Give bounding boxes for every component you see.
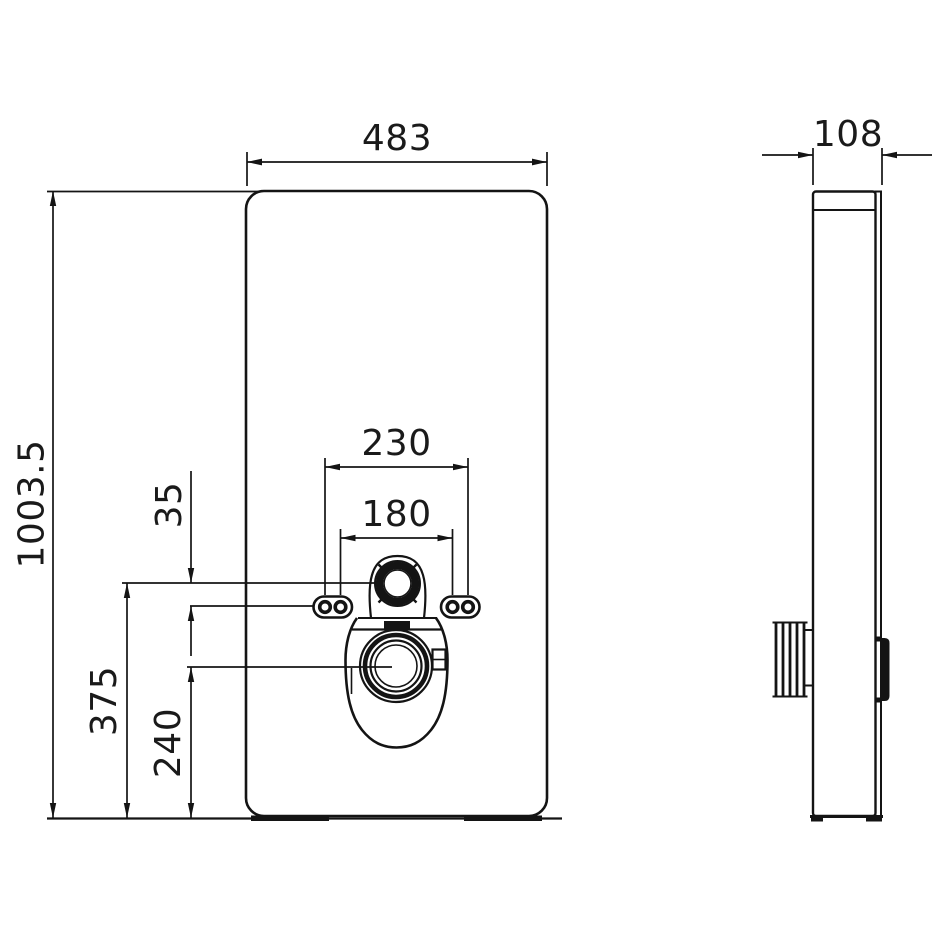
dim-depth-label: 108: [813, 114, 883, 155]
pan-connection-bump: [877, 637, 890, 703]
glass-panel-edge: [876, 192, 882, 817]
side-foot-left: [811, 817, 823, 822]
dim-supply-height-label: 375: [84, 666, 125, 736]
dim-width-label: 483: [362, 118, 432, 159]
mounting-bracket-left: [314, 597, 353, 618]
fixing-hole: [320, 602, 331, 613]
dimension-height: 1003.5: [12, 191, 263, 818]
fixing-hole: [447, 602, 458, 613]
panel-foot-left: [251, 816, 329, 822]
dimension-fixing-inner: 180: [341, 494, 453, 595]
technical-drawing-page: 483 1003.5 230 180: [0, 0, 941, 941]
fixing-hole: [463, 602, 474, 613]
mounting-bracket-right: [441, 597, 480, 618]
fixing-hole: [335, 602, 346, 613]
front-view: 483 1003.5 230 180: [12, 118, 563, 821]
outlet-body-notch: [384, 621, 410, 629]
outlet-pipe-corrugated: [773, 623, 814, 697]
dimension-depth: 108: [762, 114, 932, 185]
dim-fixing-inner-label: 180: [361, 494, 431, 535]
dim-outlet-height-label: 240: [148, 708, 189, 778]
drain-outlet-rings: [360, 630, 432, 702]
water-supply-fitting: [370, 556, 426, 618]
side-foot-right: [866, 817, 882, 822]
dimension-supply-height: 375: [84, 583, 130, 818]
side-view: 108: [762, 114, 932, 822]
dim-fixing-outer-label: 230: [361, 423, 431, 464]
sanitary-module-dimension-drawing: 483 1003.5 230 180: [0, 0, 941, 941]
dim-supply-to-fixing-label: 35: [149, 482, 190, 529]
outlet-body: [346, 618, 448, 748]
dimension-width: 483: [247, 118, 547, 186]
dimension-supply-to-fixing: 35: [149, 471, 194, 656]
dimension-outlet-height: 240: [148, 667, 194, 818]
panel-foot-right: [464, 816, 542, 822]
dim-height-label: 1003.5: [12, 440, 53, 569]
side-body-outline: [813, 192, 876, 817]
